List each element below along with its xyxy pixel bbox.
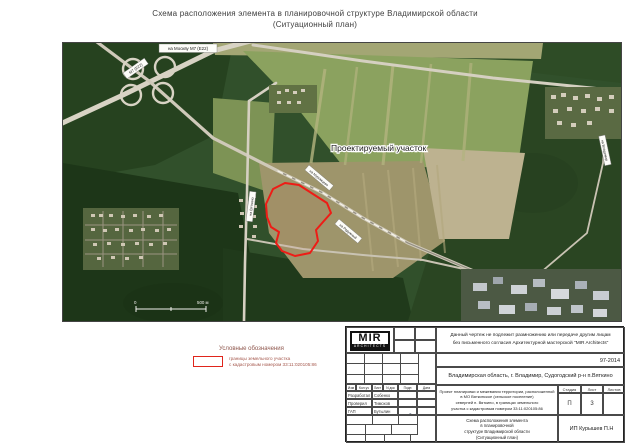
name-gap: Бутылин И.П [372, 407, 398, 415]
name-developer: Собенко Ю.И [372, 391, 398, 399]
legend-item-text: границы земельного участка с кадастровым… [229, 356, 317, 368]
date-cell [417, 391, 436, 399]
page-title-line2: (Ситуационный план) [0, 20, 630, 31]
role-checker: Проверил [346, 399, 372, 407]
company-name: ИП Курышев П.Н [558, 415, 625, 443]
col-izm: Изм [346, 384, 356, 391]
parcel-boundary-swatch [193, 356, 223, 367]
situational-map: Проектируемый участок на Москву М7 (Е22)… [62, 42, 622, 322]
approval-grid [346, 353, 436, 384]
blank-cell [394, 327, 415, 340]
svg-text:на Москву М7 (Е22): на Москву М7 (Е22) [168, 46, 209, 51]
role-gap: ГАП [346, 407, 372, 415]
project-number: 97-2014 [436, 353, 625, 367]
col-list: Лист [372, 384, 383, 391]
mir-architects-logo: MIR ARCHITECTS [350, 331, 390, 351]
empty-rows [346, 415, 436, 443]
title-block: MIR ARCHITECTS Изм Кол.уч Лист N док Под… [345, 326, 624, 442]
project-site-label: Проектируемый участок [331, 143, 427, 153]
road-label-moscow: на Москву М7 (Е22) [159, 44, 217, 53]
page-title: Схема расположения элемента в планировоч… [0, 9, 630, 31]
blank-cell [415, 340, 436, 353]
page-title-line1: Схема расположения элемента в планировоч… [0, 9, 630, 20]
legend: Условные обозначения границы земельного … [193, 346, 343, 368]
object-location: Владимирская область, г. Владимир, Судог… [436, 367, 625, 385]
signature-developer [398, 391, 417, 399]
col-koluch: Кол.уч [356, 384, 372, 391]
industrial-area [461, 269, 621, 321]
sheets-label: Листов [603, 385, 625, 393]
sheet-value: 3 [581, 393, 603, 415]
blank-cell [394, 340, 415, 353]
legend-title: Условные обозначения [219, 346, 343, 352]
stage-label: Стадия [558, 385, 581, 393]
drawing-sheet: Схема расположения элемента в планировоч… [0, 0, 630, 445]
col-podp: Подп [398, 384, 417, 391]
scheme-title: Схема расположения элемента в планировоч… [436, 415, 558, 443]
blank-cell [415, 327, 436, 340]
col-data: Дата [417, 384, 436, 391]
disclaimer: Данный чертеж не подлежит размножению ил… [436, 327, 625, 353]
logo-cell: MIR ARCHITECTS [346, 327, 394, 353]
svg-text:500 м: 500 м [197, 300, 209, 305]
role-developer: Разработал [346, 391, 372, 399]
date-cell [417, 399, 436, 407]
project-description: Проект планировки и межевания территории… [436, 385, 558, 415]
signature-gap [398, 407, 417, 415]
sheets-value [603, 393, 625, 415]
sheet-label: Лист [581, 385, 603, 393]
legend-item: границы земельного участка с кадастровым… [193, 356, 343, 368]
date-cell [417, 407, 436, 415]
col-ndok: N док [383, 384, 398, 391]
signature-checker [398, 399, 417, 407]
name-checker: Тимохов Д.А [372, 399, 398, 407]
map-canvas: Проектируемый участок на Москву М7 (Е22)… [63, 43, 621, 321]
stage-value: П [558, 393, 581, 415]
